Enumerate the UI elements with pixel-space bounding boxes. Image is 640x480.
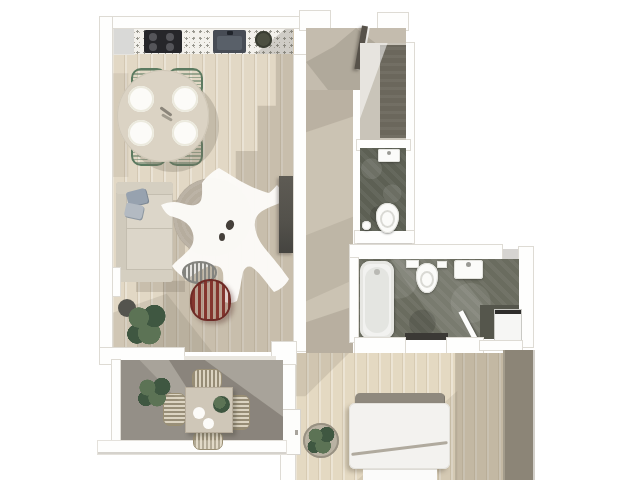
- cistern-box: [406, 260, 419, 268]
- table-plant: [213, 396, 230, 413]
- wall-top-kitchen: [100, 17, 312, 28]
- bed-foot-base: [363, 469, 437, 480]
- potted-plant-living: [124, 300, 170, 350]
- wall-wc-bottom: [355, 231, 414, 243]
- plate: [128, 120, 154, 146]
- wire-stool-red: [190, 279, 231, 321]
- tub-faucet-icon: [374, 269, 380, 275]
- corridor-shadow-a: [306, 90, 353, 354]
- wall-bath-left: [350, 258, 358, 342]
- plate: [193, 407, 205, 419]
- cowhide-rug: [156, 160, 298, 306]
- bed-duvet: [349, 403, 450, 469]
- wardrobe: [503, 350, 535, 480]
- bathtub: [360, 261, 394, 339]
- wall-bath-top: [350, 245, 502, 259]
- corridor-floor: [306, 90, 353, 354]
- bathtub-basin: [365, 267, 389, 333]
- washing-machine: [495, 310, 521, 340]
- bathroom-threshold-mat: [405, 333, 448, 340]
- faucet-icon: [387, 151, 391, 155]
- burner: [166, 33, 174, 41]
- cooktop: [144, 30, 182, 53]
- wall-living-hall: [294, 55, 306, 351]
- burner: [166, 43, 174, 51]
- wall-bedroom-top-left: [355, 338, 405, 353]
- kitchen-sink: [213, 30, 246, 53]
- storage-closet-floor: [360, 43, 406, 140]
- wc-sink: [378, 149, 400, 162]
- sink-basin: [217, 36, 242, 50]
- faucet-icon: [466, 262, 471, 267]
- corridor-shadow-c: [306, 90, 353, 354]
- door-handle-icon: [295, 430, 298, 435]
- cowhide-spot: [219, 233, 225, 241]
- waste-bin: [362, 221, 371, 230]
- fridge-block: [114, 28, 134, 54]
- plate: [203, 418, 214, 429]
- potted-plant-terrace: [134, 376, 176, 409]
- plate: [172, 86, 198, 112]
- guest-wc-floor: [360, 148, 406, 231]
- burner: [149, 43, 157, 51]
- wall-bedroom-top-right: [447, 338, 483, 353]
- outdoor-table: [185, 387, 233, 433]
- wall-wc-right: [406, 43, 414, 233]
- terrace-railing: [98, 441, 286, 454]
- double-bed: [349, 393, 450, 480]
- burner: [149, 33, 157, 41]
- wall-niche-bottom: [480, 341, 522, 350]
- potted-plant-bedroom: [305, 424, 338, 457]
- shelf-item: [437, 261, 447, 268]
- faucet-icon: [227, 31, 233, 35]
- corridor-shadow-b: [306, 90, 353, 354]
- bathroom-sink: [454, 260, 483, 279]
- counter-bowl: [255, 31, 272, 48]
- terrace-left-rail: [112, 360, 120, 442]
- outdoor-chair: [193, 431, 223, 450]
- toilet-seat-ring: [420, 271, 434, 288]
- wall-bath-right: [519, 247, 533, 347]
- tv-sideboard: [279, 176, 294, 253]
- toilet-seat-ring: [380, 210, 395, 228]
- closet-dark-unit: [380, 45, 406, 138]
- duvet-fold-line: [351, 441, 448, 456]
- floorplan-canvas: [0, 0, 640, 480]
- wc-toilet: [376, 203, 399, 233]
- dining-table: [117, 70, 209, 162]
- plate: [172, 120, 198, 146]
- plate: [128, 86, 154, 112]
- wall-left: [100, 17, 112, 355]
